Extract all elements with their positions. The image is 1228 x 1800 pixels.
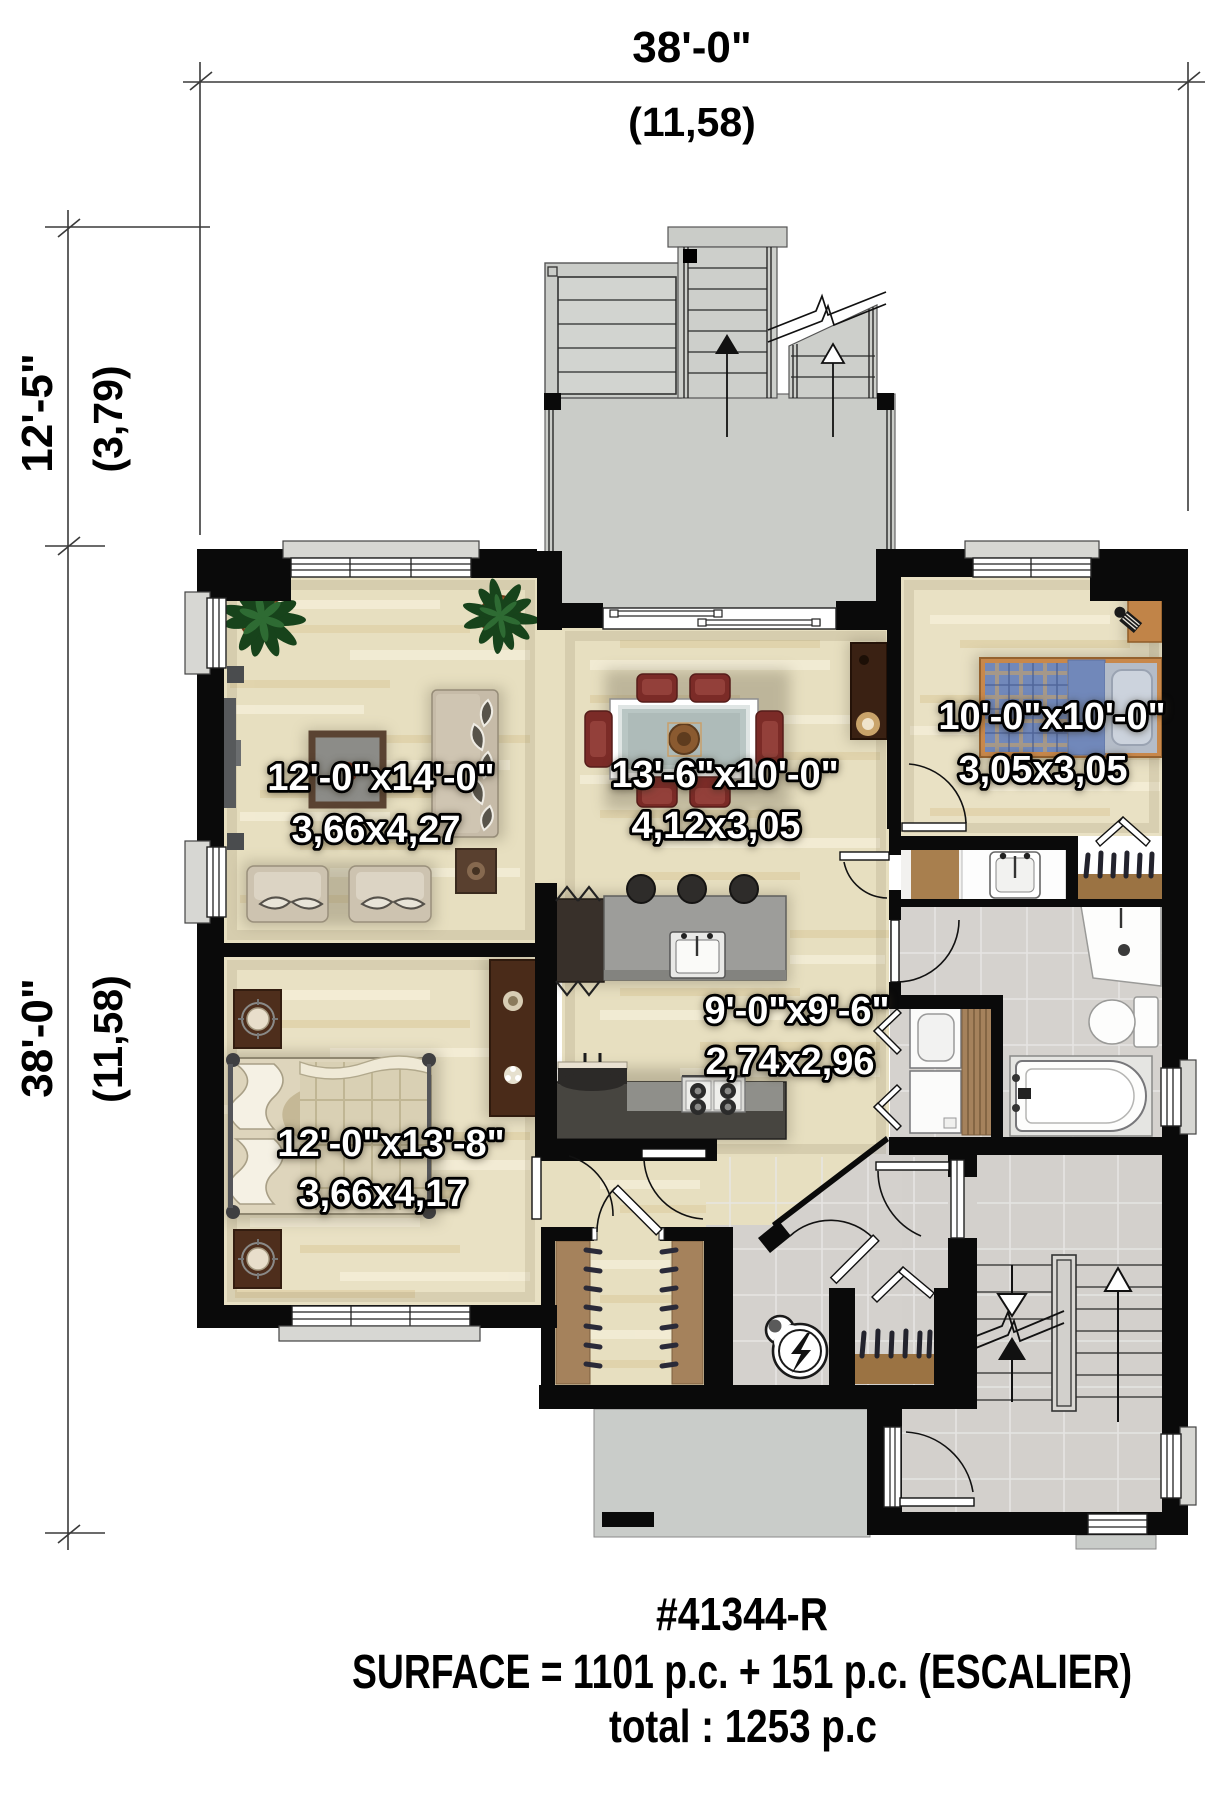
svg-text:9'-0"x9'-6": 9'-0"x9'-6": [704, 990, 889, 1032]
svg-text:13'-6"x10'-0": 13'-6"x10'-0": [611, 754, 838, 796]
svg-text:10'-0"x10'-0": 10'-0"x10'-0": [938, 696, 1165, 738]
svg-text:12'-0"x14'-0": 12'-0"x14'-0": [267, 757, 494, 799]
svg-text:3,66x4,27: 3,66x4,27: [291, 809, 460, 851]
svg-text:12'-0"x13'-8": 12'-0"x13'-8": [277, 1123, 504, 1165]
svg-text:(11,58): (11,58): [628, 99, 756, 145]
svg-text:2,74x2,96: 2,74x2,96: [705, 1041, 874, 1083]
svg-text:12'-5": 12'-5": [13, 353, 62, 472]
svg-text:38'-0": 38'-0": [13, 978, 62, 1097]
svg-text:38'-0": 38'-0": [632, 23, 751, 72]
svg-text:3,05x3,05: 3,05x3,05: [958, 749, 1127, 791]
svg-text:#41344-R: #41344-R: [656, 1588, 828, 1640]
svg-text:4,12x3,05: 4,12x3,05: [631, 805, 800, 847]
svg-text:SURFACE = 1101 p.c. + 151 p.c.: SURFACE = 1101 p.c. + 151 p.c. (ESCALIER…: [352, 1646, 1132, 1699]
svg-text:3,66x4,17: 3,66x4,17: [298, 1173, 467, 1215]
svg-text:total : 1253 p.c: total : 1253 p.c: [609, 1700, 877, 1752]
svg-text:(11,58): (11,58): [85, 975, 131, 1103]
svg-text:(3,79): (3,79): [85, 365, 131, 472]
